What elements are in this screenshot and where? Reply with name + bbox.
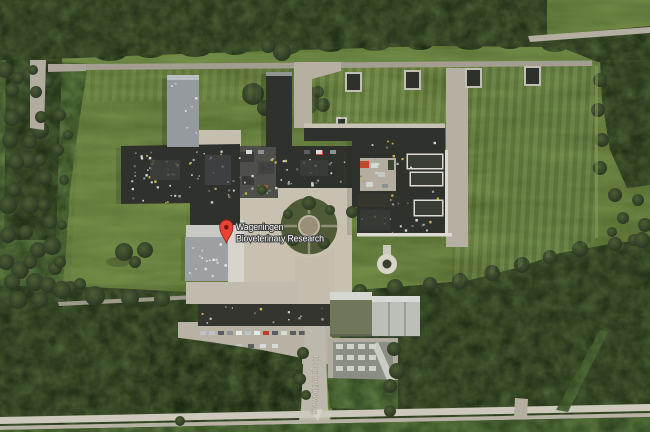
svg-text:Bioveterinary Research: Bioveterinary Research <box>236 234 324 244</box>
svg-text:Houtribweg: Houtribweg <box>310 356 320 417</box>
svg-text:Wageningen: Wageningen <box>236 222 284 232</box>
